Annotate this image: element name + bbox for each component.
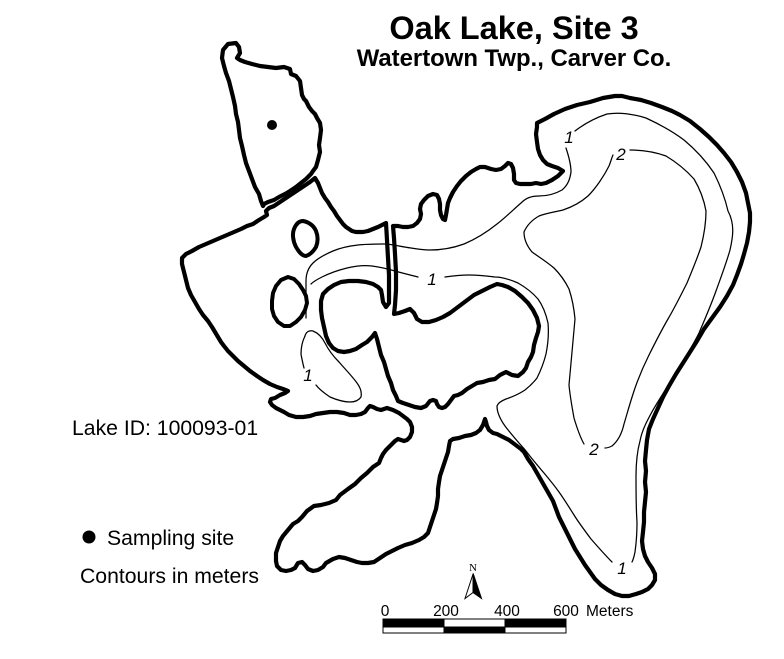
- svg-text:1: 1: [427, 270, 436, 289]
- svg-text:1: 1: [564, 128, 573, 147]
- svg-text:200: 200: [433, 603, 459, 620]
- svg-text:600: 600: [553, 603, 579, 620]
- svg-text:Contours in meters: Contours in meters: [80, 565, 259, 588]
- svg-text:400: 400: [494, 603, 520, 620]
- svg-text:N: N: [469, 562, 477, 574]
- svg-text:1: 1: [617, 559, 626, 578]
- svg-text:Lake ID: 100093-01: Lake ID: 100093-01: [72, 417, 258, 440]
- svg-text:Meters: Meters: [586, 603, 634, 620]
- svg-text:2: 2: [588, 440, 599, 459]
- svg-text:0: 0: [381, 603, 390, 620]
- svg-text:1: 1: [303, 366, 312, 385]
- svg-text:Sampling site: Sampling site: [107, 527, 234, 550]
- svg-text:2: 2: [615, 145, 626, 164]
